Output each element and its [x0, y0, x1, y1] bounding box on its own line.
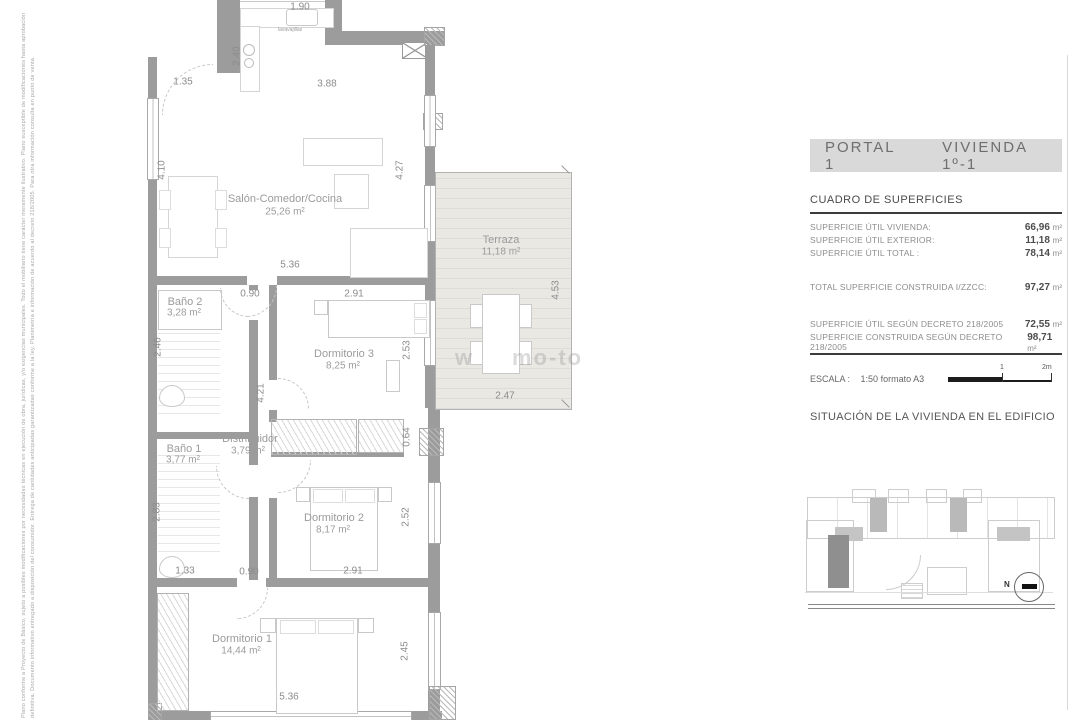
dining-chair: [159, 190, 171, 210]
title-band: PORTAL 1 VIVIENDA 1º-1: [810, 139, 1062, 172]
room-area-terraza: 11,18 m²: [482, 247, 521, 258]
dim-label: 2.91: [344, 289, 363, 300]
disclaimer-line-1: Plano conforme a Proyecto de Básico, suj…: [20, 2, 29, 718]
page-frame-line: [1067, 55, 1068, 710]
toilet: [159, 385, 185, 407]
scale-label: ESCALA :: [810, 374, 850, 384]
floorplan-sheet: Plano conforme a Proyecto de Básico, suj…: [0, 0, 1080, 720]
dim-label: 2.52: [401, 507, 412, 526]
gray-notch: [997, 527, 1030, 541]
closet: [358, 419, 404, 453]
table-title: CUADRO DE SUPERFICIES: [810, 194, 1062, 214]
table-row: SUPERFICIE ÚTIL SEGÚN DECRETO 218/2005 7…: [810, 319, 1062, 332]
wall: [157, 578, 237, 587]
pillar: [419, 428, 444, 456]
dim-label: 2.45: [400, 641, 411, 660]
nightstand: [296, 487, 310, 502]
scale-tick-2m: 2m: [1042, 364, 1052, 371]
room-area-bano2: 3,28 m²: [167, 308, 201, 319]
wall: [269, 498, 277, 584]
disclaimer-line-2: definitiva. Documento informativo entreg…: [29, 2, 38, 718]
pillow: [414, 303, 427, 318]
dim-label: 2.47: [495, 391, 514, 402]
dim-label: 0.90: [239, 567, 258, 578]
dim-label: 2.53: [402, 340, 413, 359]
vivienda-label: VIVIENDA 1º-1: [942, 139, 1062, 173]
wall: [266, 578, 428, 587]
stairs: [901, 583, 923, 599]
room-label-salon: Salón-Comedor/Cocina: [228, 193, 342, 205]
stair-core: [950, 498, 967, 532]
scale-row: ESCALA : 1:50 formato A3: [810, 374, 924, 384]
room-label-distribuidor: Distribuidor: [222, 433, 278, 445]
table-row: TOTAL SUPERFICIE CONSTRUIDA I/ZZCC: 97,2…: [810, 282, 1062, 295]
window: [428, 612, 441, 690]
north-needle: [1022, 584, 1037, 589]
dim-label: 5.36: [280, 260, 299, 271]
dining-chair: [215, 190, 227, 210]
wall: [240, 1, 332, 2]
wall: [249, 320, 258, 435]
dining-chair: [159, 228, 171, 248]
desk: [386, 360, 400, 392]
stair-core: [870, 498, 887, 532]
watermark: mo-to: [512, 345, 583, 371]
dim-label: 0.90: [240, 289, 259, 300]
dim-label: 4.21: [256, 383, 267, 402]
door-arc: [216, 466, 249, 499]
dim-label: 4.53: [551, 280, 562, 299]
table-row: SUPERFICIE ÚTIL TOTAL : 78,14 m²: [810, 248, 1062, 261]
scale-bar: [948, 377, 1052, 385]
door-arc: [162, 64, 213, 115]
table-row: SUPERFICIE CONSTRUIDA SEGÚN DECRETO 218/…: [810, 332, 1062, 345]
stove-burner: [243, 44, 255, 56]
double-rule: [808, 604, 1055, 605]
dim-label: 2.40: [232, 46, 243, 65]
divider: [810, 353, 1062, 355]
scale-value: 1:50 formato A3: [861, 374, 925, 384]
room-area-salon: 25,26 m²: [265, 207, 304, 218]
dim-label: 1.35: [173, 77, 192, 88]
door-arc: [237, 588, 268, 619]
dim-label: 1.33: [175, 566, 194, 577]
room-area-dorm1: 14,44 m²: [221, 646, 260, 657]
roof-box: [888, 489, 909, 503]
portal-label: PORTAL 1: [825, 139, 907, 173]
kitchen-island: [350, 228, 428, 278]
room-label-bano1: Baño 1: [167, 443, 202, 455]
pillow: [313, 489, 343, 503]
closet: [271, 419, 357, 455]
dim-label: 2.83: [152, 502, 163, 521]
pillow: [345, 489, 375, 503]
table-row: SUPERFICIE ÚTIL VIVIENDA: 66,96 m²: [810, 222, 1062, 235]
dining-table: [168, 176, 218, 258]
north-label: N: [1004, 580, 1010, 589]
dim-label: 0.64: [402, 427, 413, 446]
wardrobe: [157, 593, 189, 711]
dishwasher-label: lavavajillas: [278, 27, 302, 33]
room-area-dorm3: 8,25 m²: [326, 361, 360, 372]
situacion-title: SITUACIÓN DE LA VIVIENDA EN EL EDIFICIO: [810, 411, 1055, 423]
room-area-distribuidor: 3,79 m²: [231, 446, 265, 457]
pillar: [424, 27, 445, 46]
highlight-unit: [828, 535, 849, 588]
room-area-dorm2: 8,17 m²: [316, 525, 350, 536]
dim-label: 4.10: [157, 160, 168, 179]
dim-label: 4.27: [395, 160, 406, 179]
pillow: [414, 319, 427, 334]
sofa: [303, 138, 383, 166]
wall: [157, 276, 247, 285]
nightstand: [314, 300, 328, 315]
nightstand: [358, 618, 374, 633]
room-label-dorm1: Dormitorio 1: [212, 633, 272, 645]
dim-label: 2.91: [343, 566, 362, 577]
room-label-dorm2: Dormitorio 2: [304, 512, 364, 524]
dim-label: 2.46: [153, 337, 164, 356]
terrace-chair: [519, 304, 532, 328]
surface-table: SUPERFICIE ÚTIL VIVIENDA: 66,96 m² SUPER…: [810, 222, 1062, 345]
scale-tick-1: 1: [1000, 364, 1004, 371]
double-rule: [808, 608, 1055, 609]
courtyard-pool: [927, 567, 967, 595]
pillow: [318, 620, 354, 634]
pillar: [429, 686, 456, 720]
table-row: SUPERFICIE ÚTIL EXTERIOR: 11,18 m²: [810, 235, 1062, 248]
room-label-dorm3: Dormitorio 3: [314, 348, 374, 360]
watermark: w: [455, 345, 474, 371]
window: [424, 95, 436, 147]
pillow: [280, 620, 316, 634]
dining-chair: [215, 228, 227, 248]
nightstand: [378, 487, 392, 502]
stove-burner: [244, 58, 254, 68]
dim-label: 5.36: [279, 692, 298, 703]
window: [428, 482, 441, 544]
door-arc: [278, 378, 309, 409]
room-label-terraza: Terraza: [483, 234, 520, 246]
room-label-bano2: Baño 2: [168, 296, 203, 308]
roof-box: [926, 489, 947, 503]
terrace-chair: [470, 304, 483, 328]
legal-disclaimer: Plano conforme a Proyecto de Básico, suj…: [20, 2, 38, 718]
dim-label: 1.90: [290, 2, 309, 13]
dim-label: 3.88: [317, 79, 336, 90]
nightstand: [260, 618, 276, 633]
room-area-bano1: 3,77 m²: [166, 455, 200, 466]
